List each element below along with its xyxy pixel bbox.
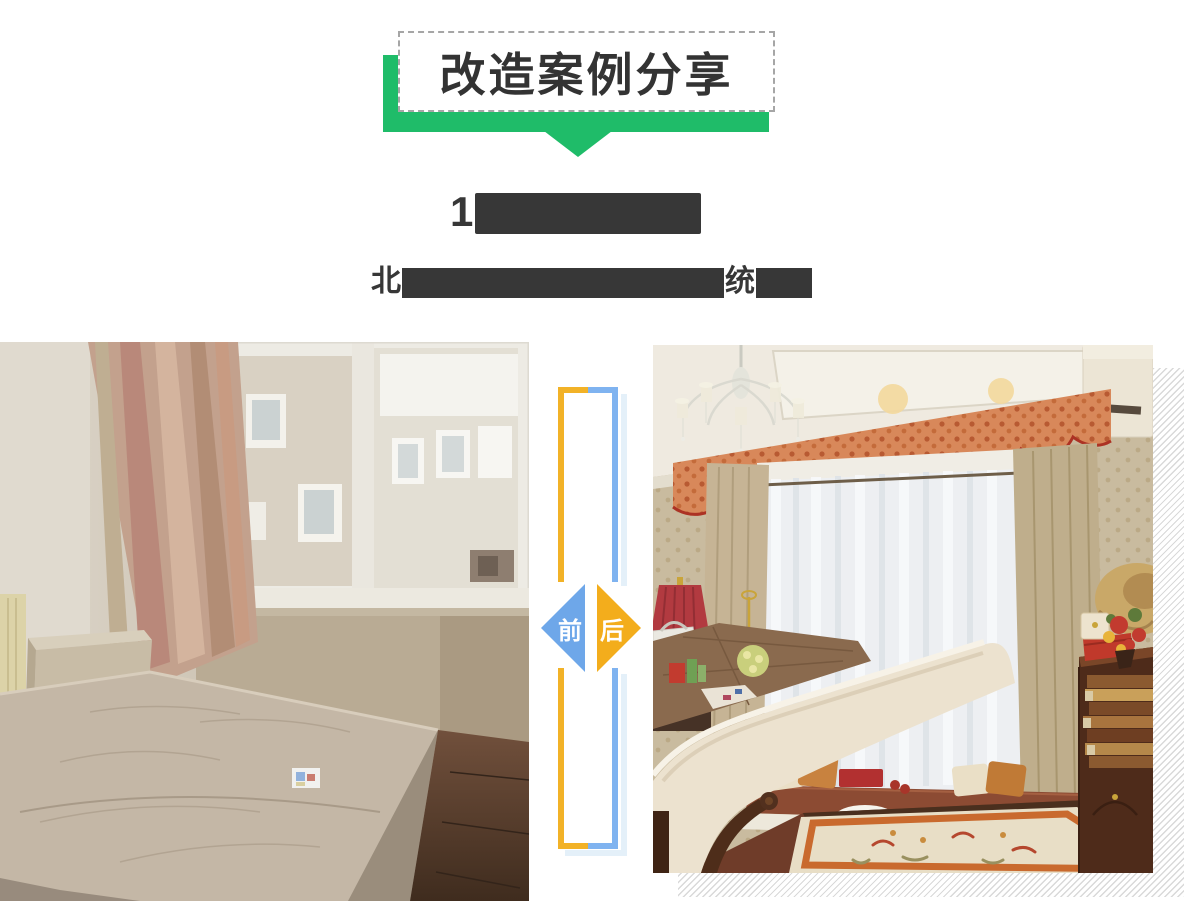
case-subtitle-fragment-right: 统 bbox=[725, 265, 755, 298]
banner-box: 改造案例分享 bbox=[398, 31, 775, 112]
frame-shadow-right-lower bbox=[621, 674, 627, 850]
case-subtitle-redaction-bar-1 bbox=[402, 268, 724, 298]
case-subtitle-redaction-bar-2 bbox=[756, 268, 812, 298]
frame-bottom-edge bbox=[558, 843, 618, 849]
frame-left-upper bbox=[558, 387, 564, 582]
green-ribbon-pointer bbox=[544, 131, 612, 157]
case-title-redaction-bar bbox=[475, 193, 701, 234]
after-label: 后 bbox=[600, 611, 624, 646]
case-subtitle-redacted: 北 统 bbox=[371, 265, 812, 298]
case-subtitle-fragment-left: 北 bbox=[371, 265, 401, 298]
frame-right-upper bbox=[612, 387, 618, 582]
frame-right-lower bbox=[612, 668, 618, 843]
case-title-fragment: 1 bbox=[450, 190, 473, 234]
frame-shadow-bottom bbox=[565, 850, 627, 856]
before-label: 前 bbox=[558, 611, 582, 646]
before-photo bbox=[0, 342, 529, 901]
frame-shadow-right-upper bbox=[621, 394, 627, 586]
promo-page: 改造案例分享 1 北 统 bbox=[0, 0, 1184, 901]
banner-title: 改造案例分享 bbox=[440, 39, 734, 105]
after-badge: 后 bbox=[597, 584, 641, 672]
case-title-redacted: 1 bbox=[450, 190, 701, 234]
before-badge: 前 bbox=[541, 584, 585, 672]
after-photo bbox=[653, 345, 1153, 873]
green-ribbon-bottom bbox=[383, 111, 769, 132]
frame-left-lower bbox=[558, 668, 564, 843]
frame-top-edge bbox=[558, 387, 618, 393]
